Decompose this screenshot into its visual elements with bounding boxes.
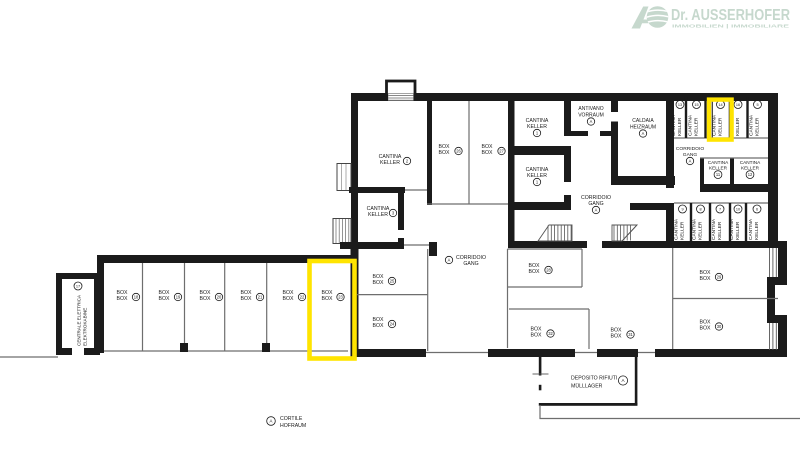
svg-text:24: 24 (390, 321, 395, 326)
svg-text:BOX: BOX (439, 150, 450, 156)
svg-text:22: 22 (300, 294, 305, 299)
svg-text:BOX: BOX (373, 323, 384, 329)
svg-text:20: 20 (217, 294, 222, 299)
svg-text:CANTINA: CANTINA (711, 218, 717, 240)
svg-text:CANTINA: CANTINA (692, 218, 698, 240)
svg-text:HOFRAUM: HOFRAUM (280, 423, 306, 429)
svg-text:KELLER: KELLER (754, 221, 760, 240)
svg-text:A: A (595, 207, 598, 212)
svg-text:8: 8 (699, 207, 701, 211)
svg-text:11: 11 (716, 172, 721, 177)
svg-text:9: 9 (681, 207, 683, 211)
svg-text:CANTINA: CANTINA (688, 114, 694, 136)
svg-text:BOX: BOX (117, 296, 128, 302)
svg-text:30: 30 (717, 324, 722, 329)
svg-text:CORTILE: CORTILE (280, 416, 303, 422)
svg-text:17: 17 (76, 283, 80, 288)
svg-text:KELLER: KELLER (741, 166, 760, 171)
svg-text:Dr. AUSSERHOFER: Dr. AUSSERHOFER (671, 7, 790, 24)
svg-text:KELLER: KELLER (754, 117, 760, 136)
svg-text:CANTINA: CANTINA (708, 160, 729, 165)
svg-text:29: 29 (717, 274, 722, 279)
svg-text:23: 23 (338, 294, 343, 299)
svg-text:CANTINA: CANTINA (740, 160, 761, 165)
svg-text:A: A (642, 131, 645, 136)
svg-text:IMMOBILIEN | IMMOBILIARE: IMMOBILIEN | IMMOBILIARE (672, 24, 789, 29)
svg-text:BOX: BOX (700, 276, 711, 282)
svg-text:A: A (590, 119, 593, 124)
svg-text:CANTINA: CANTINA (712, 114, 718, 136)
svg-text:19: 19 (176, 294, 181, 299)
svg-text:KELLER: KELLER (677, 117, 683, 136)
svg-text:28: 28 (546, 267, 551, 272)
svg-text:KELLER: KELLER (717, 221, 723, 240)
svg-text:GANG: GANG (463, 261, 478, 267)
svg-text:BOX: BOX (482, 150, 493, 156)
svg-text:BOX: BOX (700, 326, 711, 332)
svg-text:ANTIVANO: ANTIVANO (578, 106, 603, 112)
svg-text:KELLER: KELLER (380, 160, 400, 166)
svg-text:BOX: BOX (200, 296, 211, 302)
svg-text:CALDAIA: CALDAIA (632, 118, 654, 124)
svg-text:BOX: BOX (531, 333, 542, 339)
svg-text:KELLER: KELLER (735, 117, 741, 136)
svg-text:KELLER: KELLER (693, 117, 699, 136)
svg-text:18: 18 (134, 294, 139, 299)
svg-text:10: 10 (736, 207, 740, 211)
svg-text:MÜLLLAGER: MÜLLLAGER (571, 383, 603, 390)
svg-text:12: 12 (748, 172, 753, 177)
svg-text:25: 25 (390, 278, 395, 283)
svg-text:CANTINA: CANTINA (748, 218, 754, 240)
svg-text:BOX: BOX (373, 280, 384, 286)
svg-text:DEPOSITO RIFIUTI: DEPOSITO RIFIUTI (571, 376, 617, 382)
svg-text:BOX: BOX (241, 296, 252, 302)
svg-text:27: 27 (499, 148, 504, 153)
svg-text:32: 32 (548, 331, 553, 336)
svg-text:CANTINA: CANTINA (729, 218, 735, 240)
svg-text:BOX: BOX (283, 296, 294, 302)
svg-text:KELLER: KELLER (697, 221, 703, 240)
svg-text:26: 26 (456, 148, 461, 153)
svg-text:16: 16 (736, 103, 740, 107)
svg-text:A: A (270, 419, 273, 424)
svg-text:KELLER: KELLER (679, 221, 685, 240)
svg-text:31: 31 (628, 332, 633, 337)
svg-text:14: 14 (718, 103, 722, 107)
svg-text:CANTINA: CANTINA (671, 114, 677, 136)
svg-text:KELLER: KELLER (709, 166, 728, 171)
svg-text:6: 6 (756, 207, 758, 211)
svg-text:KELLER: KELLER (735, 221, 741, 240)
svg-text:13: 13 (678, 103, 682, 107)
svg-text:KELLER: KELLER (368, 212, 388, 218)
svg-text:CANTINA: CANTINA (749, 114, 755, 136)
svg-text:A: A (689, 158, 692, 163)
svg-text:A: A (448, 257, 451, 262)
svg-text:21: 21 (258, 294, 263, 299)
svg-text:15: 15 (694, 103, 698, 107)
svg-text:CORRIDOIO: CORRIDOIO (676, 146, 704, 152)
svg-text:ELEKTROKABINE: ELEKTROKABINE (83, 308, 88, 346)
svg-text:BOX: BOX (611, 334, 622, 340)
svg-text:5: 5 (756, 103, 758, 107)
svg-text:KELLER: KELLER (717, 117, 723, 136)
svg-text:BOX: BOX (322, 296, 333, 302)
svg-text:BOX: BOX (529, 269, 540, 275)
svg-text:CENTRALE ELETTRICA: CENTRALE ELETTRICA (77, 294, 82, 346)
svg-text:CANTINA: CANTINA (674, 218, 680, 240)
svg-text:BOX: BOX (159, 296, 170, 302)
svg-text:7: 7 (719, 207, 721, 211)
